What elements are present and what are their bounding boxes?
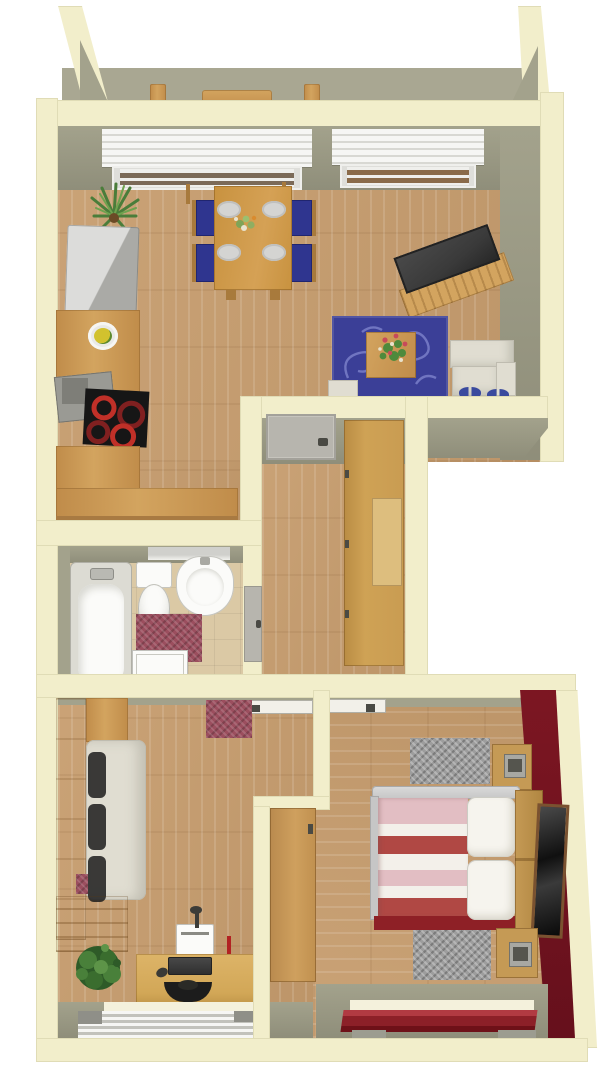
sink-bowl: [186, 568, 224, 606]
plate: [262, 201, 286, 218]
hallway-east-wall: [405, 396, 428, 692]
floorplan-canvas: [0, 0, 601, 1080]
clock-radio: [509, 942, 532, 967]
dining-table-leg: [226, 290, 236, 300]
bedroom-rug-top: [410, 738, 490, 784]
dining-table-leg: [270, 290, 280, 300]
plate: [217, 244, 241, 261]
monitor: [168, 957, 212, 975]
bathroom-west-wall-face: [58, 546, 70, 692]
kitchen-counter-lower: [56, 446, 140, 492]
printer-slot: [181, 932, 209, 935]
bedroom-inner-door-handle: [308, 824, 313, 834]
daybed-pillow: [88, 804, 106, 850]
bathroom-north-wall: [36, 520, 262, 546]
office-door-handle: [252, 705, 260, 712]
stove-burner: [91, 395, 117, 421]
bed-pillow: [467, 797, 515, 857]
wardrobe-handle: [345, 540, 349, 548]
plate: [262, 244, 286, 261]
stove-cooktop: [83, 388, 150, 447]
bedroom-rug-bottom: [413, 930, 491, 980]
entry-door-handle: [318, 438, 328, 446]
table-centerpiece-flowers: [230, 210, 264, 238]
entry-door: [266, 414, 336, 460]
north-wall: [36, 100, 564, 128]
red-accent-small: [76, 874, 88, 894]
clock-radio-face: [508, 759, 522, 772]
sink-tap: [200, 557, 210, 565]
bedroom-wall-shelf: [340, 1010, 537, 1032]
bedroom-door-handle: [366, 704, 375, 712]
living-window-right-glass: [347, 167, 469, 185]
divider-wall-upper: [313, 690, 330, 806]
west-wall: [36, 98, 58, 1046]
office-window-sill: [104, 1002, 254, 1011]
south-wall: [36, 1038, 588, 1062]
clock-radio-face: [513, 947, 528, 961]
wardrobe-handle: [345, 470, 349, 478]
clock-radio: [504, 754, 526, 778]
bedroom-door-open: [325, 699, 386, 713]
fruit-bowl-contents: [94, 328, 112, 344]
balcony-floor: [62, 68, 540, 102]
dining-chair-back-post: [186, 184, 190, 204]
bathtub-faucet: [90, 568, 114, 580]
bathroom-door-handle: [256, 620, 261, 628]
office-window-blind: [78, 1011, 258, 1038]
bedroom-window-sill: [350, 1000, 534, 1010]
printer: [176, 924, 214, 956]
wardrobe-inset-panel: [372, 498, 402, 586]
office-plant: [68, 936, 132, 1000]
daybed-pillow: [88, 752, 106, 798]
office-window-blind-cap: [78, 1011, 102, 1024]
desk-chair-seat: [178, 980, 198, 990]
living-window-left-blind: [102, 129, 312, 167]
living-window-left-glass: [120, 169, 294, 187]
mid-south-wall-band: [36, 674, 576, 698]
desk-lamp-head: [190, 906, 202, 914]
bedroom-inner-door-open: [270, 808, 316, 982]
coffee-table-flowers: [368, 326, 420, 378]
wardrobe-handle: [345, 610, 349, 618]
red-pen: [227, 936, 231, 956]
bed-striped-duvet: [378, 798, 468, 918]
bathtub-inner: [78, 584, 124, 684]
red-cushion: [206, 700, 252, 738]
stove-burner: [86, 419, 111, 444]
fridge: [64, 225, 139, 317]
divider-wall-lower: [253, 806, 270, 1044]
bed-pillow: [467, 860, 515, 920]
daybed-frame-top: [86, 698, 128, 742]
living-window-right-blind: [332, 129, 484, 165]
